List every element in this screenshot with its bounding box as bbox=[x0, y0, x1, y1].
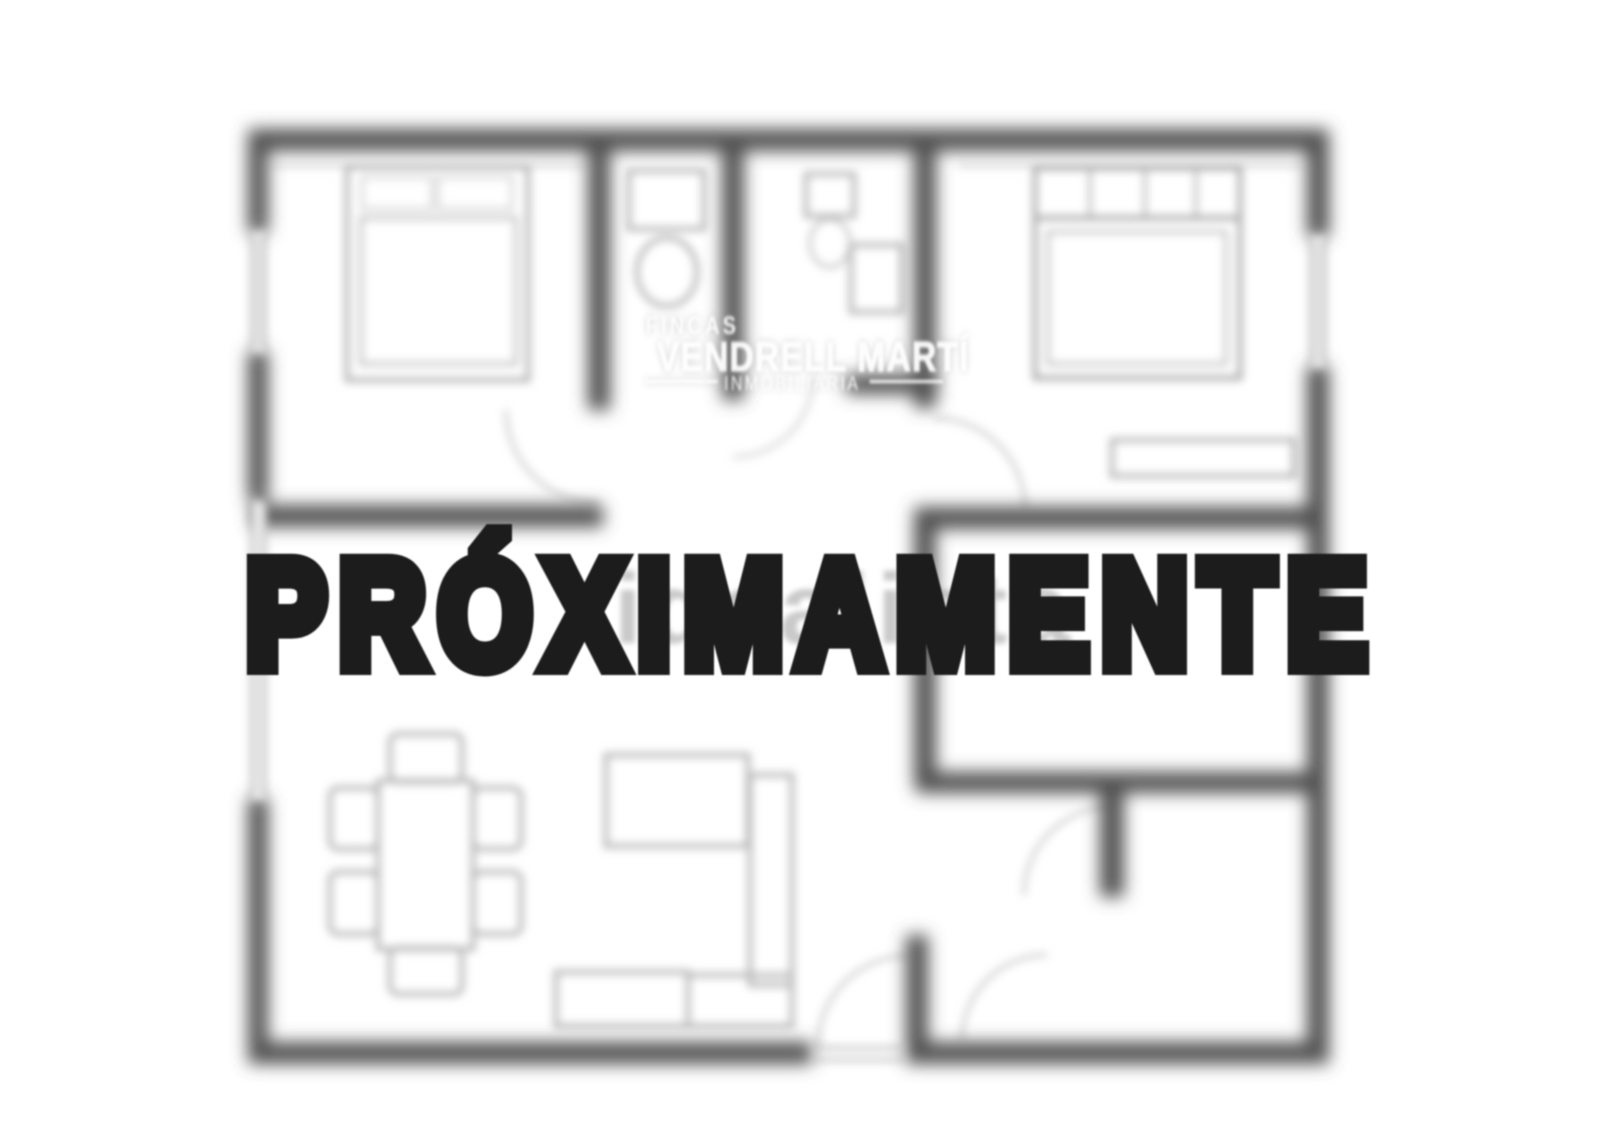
svg-text:INMOBILIARIA: INMOBILIARIA bbox=[724, 372, 860, 394]
svg-text:PRÓXIMAMENTE: PRÓXIMAMENTE bbox=[246, 530, 1380, 698]
